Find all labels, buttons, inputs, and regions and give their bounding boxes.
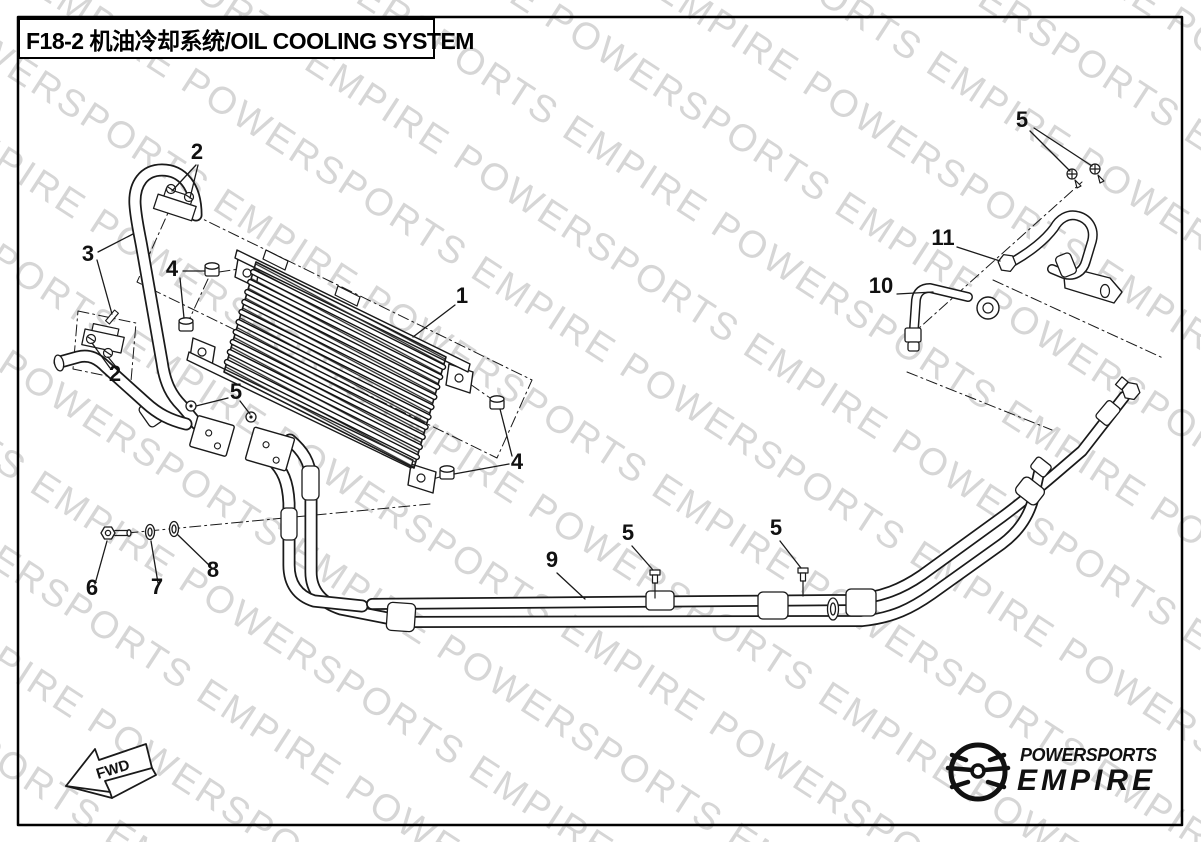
callout-1: 1 [456,283,468,308]
brand-name-bottom: EMPIRE [1017,764,1153,797]
callout-8: 8 [207,557,219,582]
callout-5b: 5 [1016,107,1028,132]
part-oil-pipes [372,374,1143,632]
diagram-canvas: 2 3 4 1 2 5 4 5 11 10 6 7 8 9 5 5 FWD [0,0,1201,842]
callout-labels: 2 3 4 1 2 5 4 5 11 10 6 7 8 9 5 5 [82,107,1028,600]
callout-5a: 5 [230,379,242,404]
callout-6: 6 [86,575,98,600]
brand-logo: POWERSPORTS EMPIRE [948,745,1157,799]
part-oil-pipe-small [905,288,999,351]
callout-7: 7 [151,574,163,599]
brand-name-top: POWERSPORTS [1020,745,1157,765]
callout-11: 11 [931,225,954,250]
callout-5d: 5 [770,515,782,540]
callout-4a: 4 [166,256,179,281]
fwd-direction-arrow: FWD [66,744,156,798]
callout-5c: 5 [622,520,634,545]
part-bolt-washers [101,522,179,540]
callout-2b: 2 [109,361,121,386]
logo-emblem [948,745,1008,799]
part-screws-topright [1067,164,1104,188]
part-pipe-clamps [186,401,295,471]
parts-diagram-page: POWERSPORTS EMPIRE POWERSPORTS EMPIRE PO… [0,0,1201,842]
part-loop-hose [997,215,1122,303]
callout-4b: 4 [511,449,524,474]
page-title: F18-2 机油冷却系统/OIL COOLING SYSTEM [20,22,474,56]
callout-9: 9 [546,547,558,572]
part-oil-cooler [187,250,473,493]
title-box: F18-2 机油冷却系统/OIL COOLING SYSTEM [18,18,435,59]
callout-10: 10 [869,273,893,298]
callout-2a: 2 [191,139,203,164]
callout-3: 3 [82,241,94,266]
